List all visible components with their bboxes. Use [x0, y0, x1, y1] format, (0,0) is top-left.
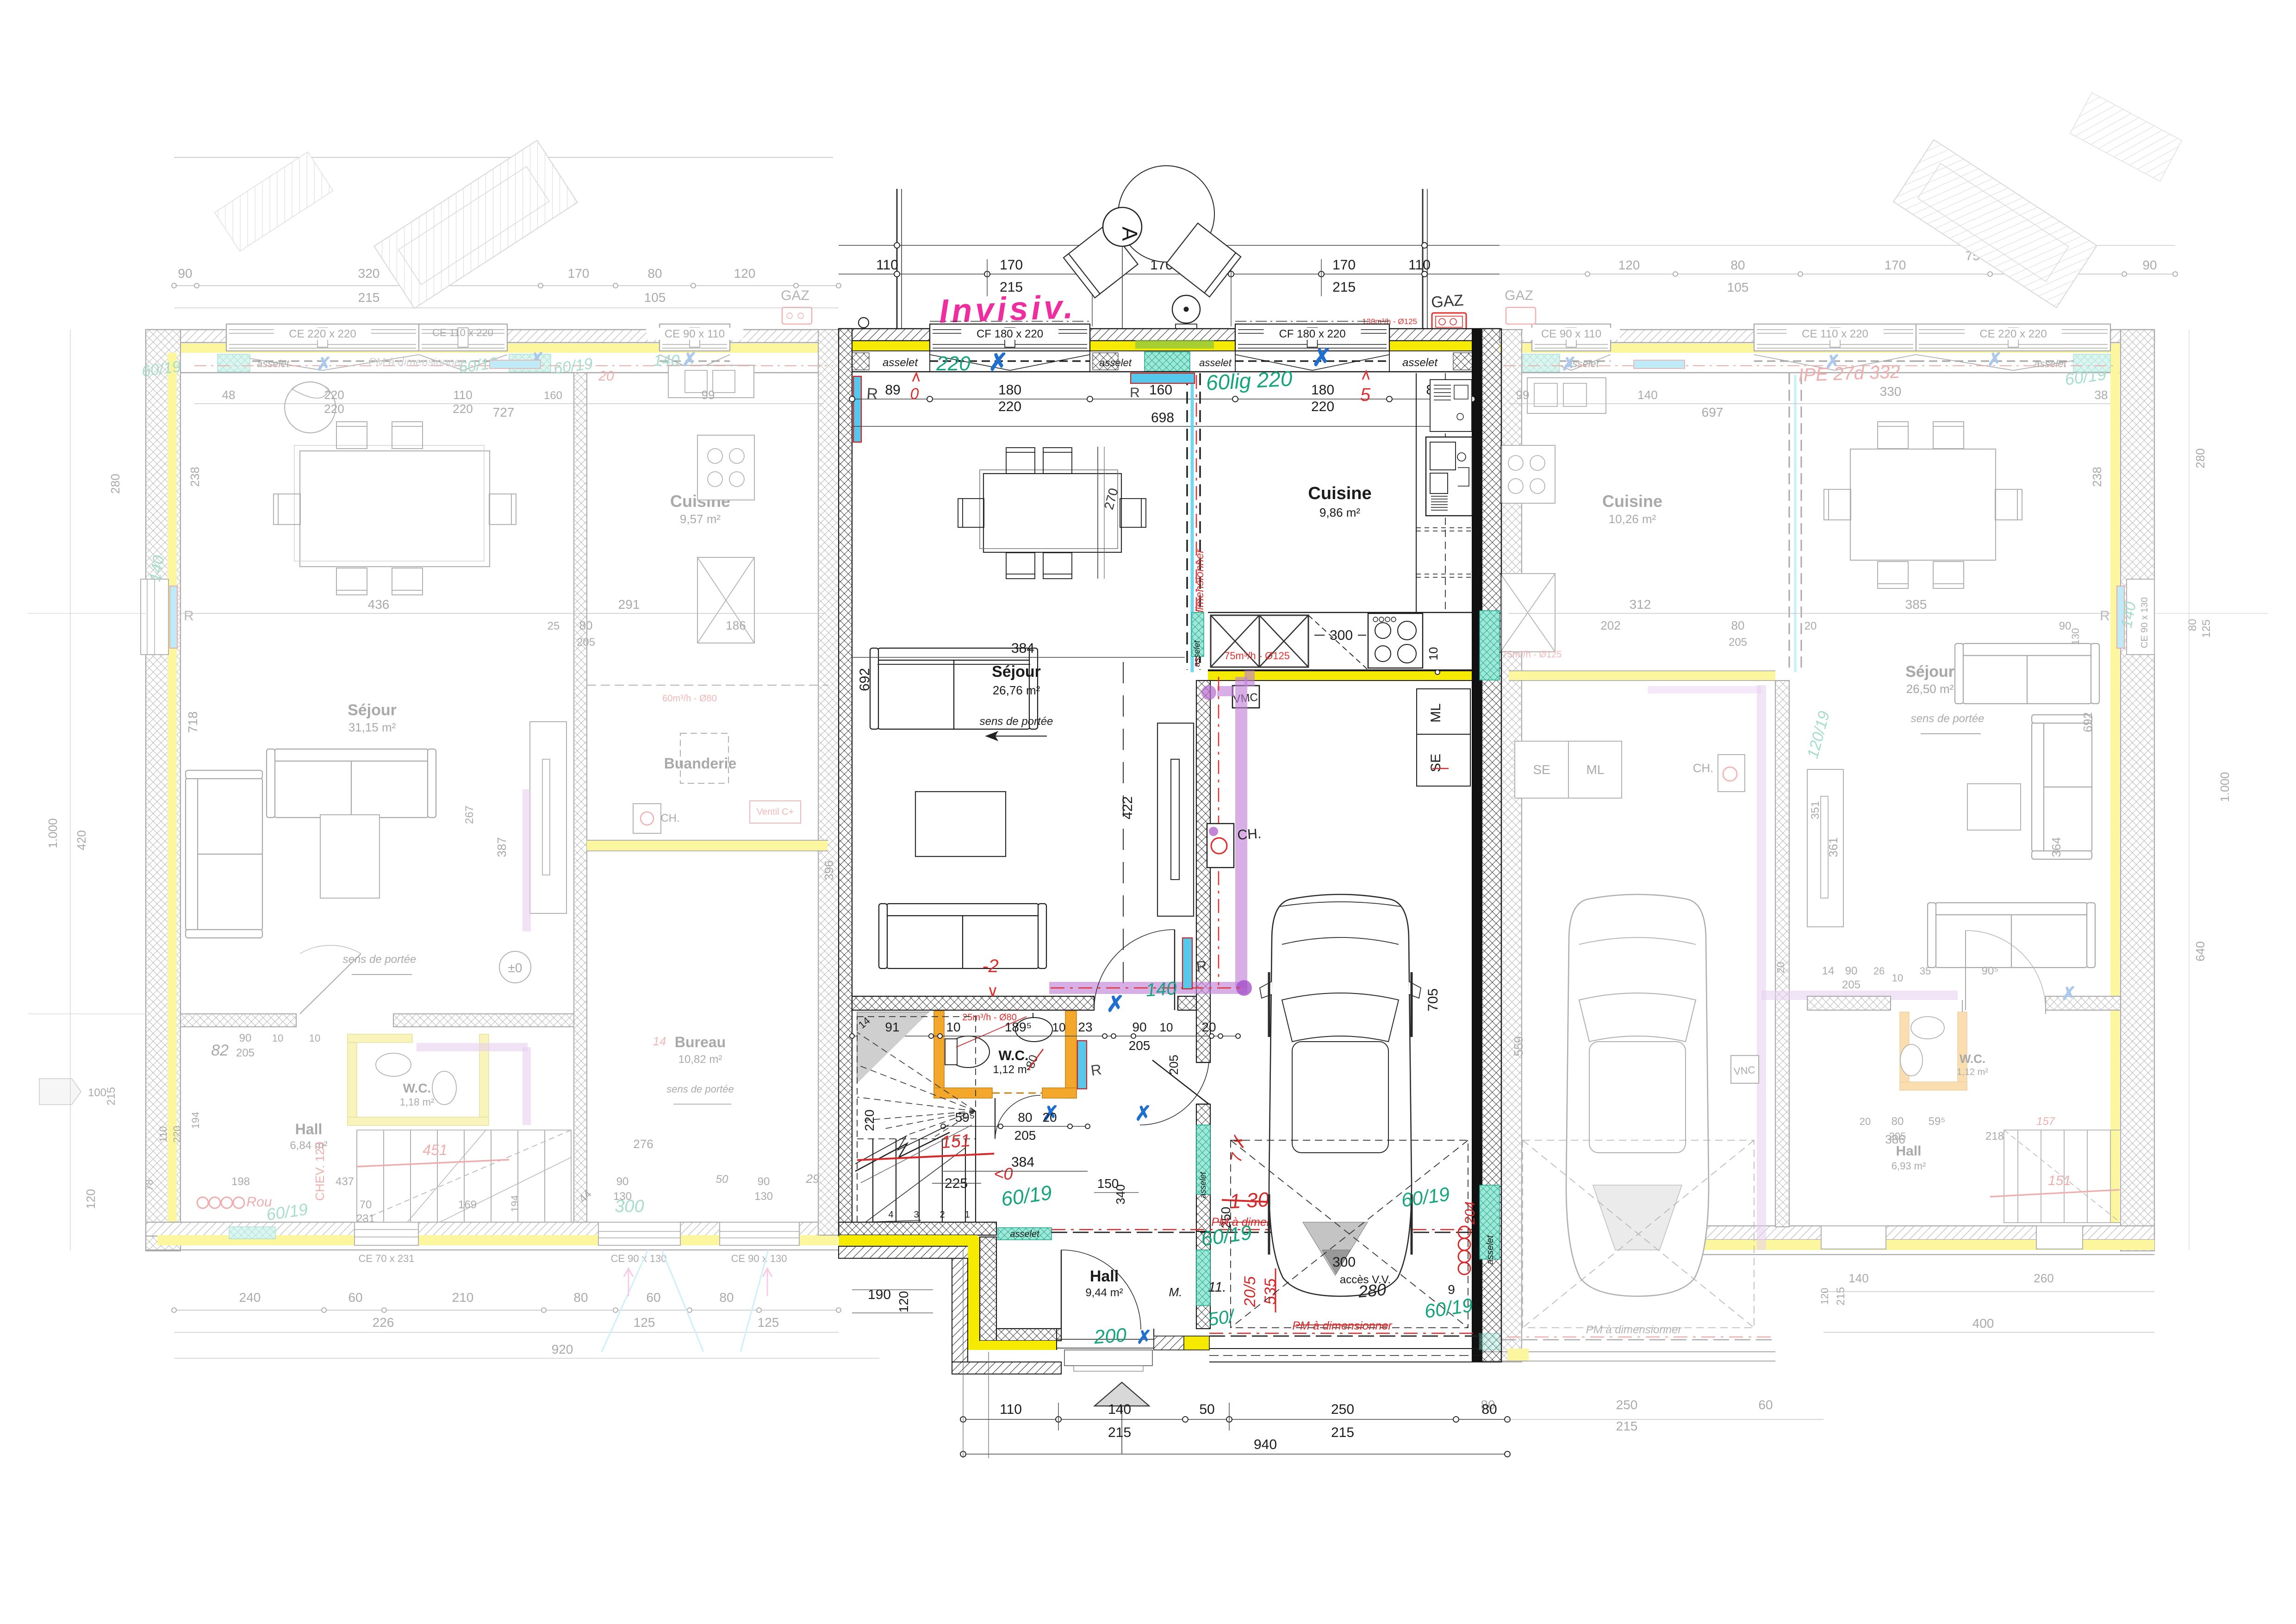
svg-text:300: 300 — [1332, 1255, 1356, 1270]
svg-text:280: 280 — [108, 474, 122, 493]
svg-text:60: 60 — [1758, 1398, 1773, 1412]
svg-text:✗: ✗ — [1135, 1102, 1152, 1125]
svg-text:422: 422 — [1120, 796, 1135, 819]
svg-text:120: 120 — [734, 266, 756, 281]
svg-text:Ventil C+: Ventil C+ — [757, 807, 794, 817]
svg-text:186: 186 — [726, 618, 746, 632]
svg-text:75m³/h - Ø125: 75m³/h - Ø125 — [1224, 650, 1290, 662]
svg-text:215: 215 — [1108, 1425, 1131, 1440]
svg-text:✗: ✗ — [988, 349, 1008, 376]
svg-text:48: 48 — [222, 388, 236, 402]
svg-text:ML: ML — [1428, 703, 1444, 723]
svg-text:PM à dimensionner: PM à dimensionner — [1292, 1319, 1393, 1332]
svg-text:240: 240 — [239, 1290, 261, 1305]
svg-text:26: 26 — [1873, 965, 1885, 977]
svg-text:80: 80 — [1018, 1110, 1032, 1124]
svg-text:6,93 m²: 6,93 m² — [1892, 1160, 1926, 1172]
svg-text:CE 90 x 130: CE 90 x 130 — [610, 1253, 666, 1264]
svg-text:asselet: asselet — [1192, 640, 1201, 667]
svg-text:10: 10 — [1160, 1020, 1173, 1034]
svg-text:80: 80 — [1731, 618, 1745, 632]
svg-text:R: R — [184, 608, 194, 624]
svg-text:CH.: CH. — [1693, 761, 1714, 775]
svg-text:60: 60 — [348, 1290, 362, 1305]
svg-text:90: 90 — [616, 1175, 629, 1188]
svg-text:384: 384 — [1011, 641, 1034, 656]
svg-text:130: 130 — [2070, 628, 2081, 645]
svg-text:215: 215 — [105, 1087, 118, 1106]
svg-text:420: 420 — [75, 830, 88, 850]
svg-text:50/: 50/ — [1207, 1306, 1237, 1330]
svg-text:697: 697 — [1702, 405, 1724, 419]
svg-text:asselet: asselet — [1099, 357, 1132, 369]
svg-text:PM à dimensionner: PM à dimensionner — [369, 356, 465, 369]
svg-text:120: 120 — [1819, 1288, 1830, 1305]
svg-text:sens de portée: sens de portée — [1911, 712, 1985, 725]
svg-text:220: 220 — [936, 352, 971, 375]
svg-text:IPE 27d 332: IPE 27d 332 — [1798, 362, 1901, 386]
svg-text:M.: M. — [1169, 1285, 1182, 1299]
svg-text:198: 198 — [231, 1175, 250, 1188]
svg-text:387: 387 — [495, 837, 509, 857]
svg-text:SE: SE — [1533, 762, 1550, 777]
svg-text:189⁵: 189⁵ — [1005, 1020, 1032, 1034]
svg-text:120: 120 — [896, 1291, 911, 1313]
svg-text:✗: ✗ — [316, 354, 332, 375]
svg-text:99: 99 — [702, 388, 715, 402]
svg-text:9: 9 — [1448, 1282, 1455, 1297]
svg-text:10: 10 — [1426, 647, 1440, 661]
svg-text:asselet: asselet — [1198, 1171, 1207, 1198]
svg-text:CE 220 x 220: CE 220 x 220 — [1979, 328, 2047, 340]
svg-text:29: 29 — [806, 1172, 820, 1186]
svg-text:-2: -2 — [982, 956, 999, 976]
svg-text:GAZ: GAZ — [1431, 292, 1464, 312]
svg-text:437: 437 — [336, 1175, 354, 1188]
svg-text:asselet: asselet — [1010, 1229, 1040, 1239]
svg-text:140: 140 — [1108, 1402, 1131, 1417]
svg-text:340: 340 — [1114, 1184, 1127, 1204]
svg-text:ML: ML — [1587, 762, 1605, 777]
svg-text:100: 100 — [88, 1087, 106, 1099]
svg-text:125: 125 — [2200, 619, 2213, 638]
svg-text:CE 90 x 110: CE 90 x 110 — [1541, 328, 1601, 340]
svg-text:80: 80 — [2186, 619, 2199, 631]
svg-text:210: 210 — [452, 1290, 474, 1305]
svg-text:CE 90 x 130: CE 90 x 130 — [2140, 597, 2150, 648]
svg-text:215: 215 — [1616, 1419, 1638, 1433]
svg-text:204: 204 — [1462, 1201, 1478, 1225]
svg-text:60lig 220: 60lig 220 — [1206, 366, 1294, 395]
svg-text:GAZ: GAZ — [781, 288, 809, 303]
svg-text:231: 231 — [356, 1212, 375, 1225]
svg-text:110: 110 — [1408, 257, 1431, 273]
svg-text:✗: ✗ — [1106, 992, 1125, 1017]
svg-text:10: 10 — [946, 1020, 960, 1034]
svg-text:20: 20 — [1775, 962, 1786, 973]
svg-text:330: 330 — [1880, 384, 1902, 399]
svg-text:157: 157 — [2036, 1115, 2056, 1128]
svg-text:sens de portée: sens de portée — [343, 953, 417, 966]
svg-text:194: 194 — [509, 1195, 521, 1212]
svg-text:90: 90 — [2142, 258, 2157, 272]
svg-text:82: 82 — [211, 1042, 229, 1059]
svg-text:169: 169 — [458, 1199, 477, 1211]
svg-text:140: 140 — [653, 352, 680, 369]
svg-text:250: 250 — [1331, 1402, 1354, 1417]
svg-text:VNC: VNC — [1733, 1064, 1756, 1077]
svg-text:705: 705 — [1425, 988, 1441, 1012]
svg-text:361: 361 — [1826, 837, 1840, 857]
svg-text:14: 14 — [653, 1034, 666, 1048]
svg-text:89: 89 — [885, 382, 900, 398]
svg-text:130: 130 — [754, 1190, 773, 1203]
svg-text:205: 205 — [236, 1047, 255, 1059]
svg-text:Cuisine: Cuisine — [1602, 492, 1662, 511]
svg-text:99: 99 — [1516, 388, 1530, 402]
svg-text:280: 280 — [1357, 1280, 1387, 1301]
svg-text:215: 215 — [358, 290, 380, 305]
svg-text:250: 250 — [1616, 1398, 1638, 1412]
svg-text:1: 1 — [964, 1210, 970, 1220]
svg-text:W.C.: W.C. — [999, 1048, 1029, 1063]
svg-text:26,76 m²: 26,76 m² — [993, 683, 1040, 697]
svg-text:194: 194 — [190, 1112, 201, 1129]
svg-text:Buanderie: Buanderie — [664, 755, 736, 772]
svg-text:4: 4 — [888, 1210, 893, 1220]
svg-text:asselet: asselet — [883, 356, 918, 369]
svg-text:75m³/h - Ø125: 75m³/h - Ø125 — [1502, 650, 1562, 660]
svg-text:CE 90 x 130: CE 90 x 130 — [731, 1253, 787, 1264]
svg-text:asselet: asselet — [1199, 357, 1232, 369]
svg-text:±0: ±0 — [508, 961, 523, 975]
svg-text:205: 205 — [1842, 979, 1860, 991]
svg-text:200: 200 — [1093, 1324, 1127, 1348]
svg-text:CF 180 x 220: CF 180 x 220 — [977, 328, 1043, 340]
svg-text:140: 140 — [1848, 1271, 1868, 1285]
svg-text:120: 120 — [1618, 258, 1640, 272]
svg-text:CHEV. 120: CHEV. 120 — [313, 1142, 327, 1201]
svg-text:215: 215 — [1332, 280, 1356, 295]
svg-text:80: 80 — [1730, 258, 1745, 272]
svg-text:151: 151 — [2048, 1173, 2071, 1188]
svg-text:151: 151 — [940, 1131, 971, 1152]
svg-text:sens de portée: sens de portée — [980, 715, 1053, 728]
svg-text:31,15 m²: 31,15 m² — [348, 720, 396, 734]
svg-text:91: 91 — [885, 1020, 899, 1034]
svg-text:220: 220 — [862, 1110, 877, 1131]
svg-text:CH.: CH. — [660, 812, 679, 824]
svg-text:<0: <0 — [994, 1164, 1013, 1183]
svg-text:220: 220 — [998, 399, 1021, 414]
svg-text:260: 260 — [2034, 1271, 2053, 1285]
svg-text:20: 20 — [1804, 620, 1817, 632]
svg-text:692: 692 — [2081, 712, 2095, 732]
svg-text:Séjour: Séjour — [348, 701, 397, 719]
svg-text:R: R — [1195, 957, 1208, 975]
svg-text:50: 50 — [1199, 1402, 1214, 1417]
svg-text:140: 140 — [1637, 388, 1657, 402]
svg-text:5: 5 — [1360, 385, 1371, 405]
svg-text:130: 130 — [613, 1190, 632, 1203]
svg-text:CF 180 x 220: CF 180 x 220 — [1279, 328, 1345, 340]
svg-text:90: 90 — [239, 1032, 252, 1044]
svg-text:SE: SE — [1428, 754, 1444, 772]
svg-text:23: 23 — [1078, 1020, 1092, 1034]
svg-text:90: 90 — [1845, 965, 1858, 977]
svg-text:78: 78 — [143, 1180, 155, 1191]
svg-text:20: 20 — [598, 369, 614, 384]
svg-text:25: 25 — [548, 620, 560, 632]
svg-text:218: 218 — [1985, 1130, 2004, 1143]
svg-text:9,57 m²: 9,57 m² — [680, 512, 721, 526]
svg-text:Hall: Hall — [295, 1121, 323, 1137]
svg-text:80: 80 — [1892, 1115, 1904, 1128]
svg-text:220: 220 — [171, 1126, 183, 1143]
svg-text:asselet: asselet — [1485, 1235, 1495, 1265]
svg-text:727: 727 — [493, 405, 515, 419]
svg-text:14: 14 — [1822, 965, 1835, 977]
svg-text:CE 110 x 220: CE 110 x 220 — [432, 327, 493, 338]
svg-text:70: 70 — [360, 1199, 372, 1211]
svg-text:CH.: CH. — [1237, 826, 1262, 843]
svg-text:300: 300 — [1330, 628, 1353, 643]
svg-text:320: 320 — [358, 266, 380, 281]
svg-text:60: 60 — [646, 1290, 660, 1305]
svg-text:238: 238 — [2090, 467, 2104, 487]
svg-text:20: 20 — [1042, 1110, 1057, 1124]
svg-text:105: 105 — [1727, 280, 1749, 294]
svg-text:1.000: 1.000 — [46, 818, 60, 848]
svg-text:215: 215 — [1835, 1287, 1847, 1305]
svg-text:90⁵: 90⁵ — [1982, 965, 1999, 977]
svg-text:291: 291 — [618, 597, 640, 612]
svg-text:140: 140 — [1145, 978, 1177, 1001]
svg-text:718: 718 — [186, 712, 200, 733]
svg-text:20: 20 — [1860, 1116, 1871, 1127]
svg-text:60m³/h - Ø80: 60m³/h - Ø80 — [662, 693, 717, 704]
svg-text:50: 50 — [716, 1173, 728, 1186]
svg-text:2: 2 — [940, 1210, 945, 1220]
svg-text:110: 110 — [157, 1126, 169, 1142]
svg-text:80: 80 — [1481, 1398, 1495, 1412]
svg-text:170: 170 — [568, 266, 590, 281]
svg-text:10,26 m²: 10,26 m² — [1609, 512, 1656, 526]
svg-text:205: 205 — [1167, 1055, 1181, 1074]
svg-text:312: 312 — [1630, 597, 1651, 612]
svg-text:120: 120 — [84, 1189, 98, 1209]
svg-text:267: 267 — [463, 806, 476, 824]
svg-text:R: R — [866, 385, 878, 403]
svg-text:238: 238 — [188, 467, 202, 487]
svg-text:226: 226 — [373, 1315, 394, 1330]
svg-text:asselet: asselet — [2034, 358, 2067, 369]
svg-text:280: 280 — [2193, 448, 2207, 468]
svg-text:698: 698 — [1151, 410, 1174, 425]
svg-text:W.C.: W.C. — [403, 1081, 431, 1095]
svg-text:351: 351 — [1809, 801, 1822, 819]
svg-text:9,86 m²: 9,86 m² — [1319, 506, 1360, 519]
svg-text:20: 20 — [1201, 1020, 1216, 1034]
svg-text:R: R — [1130, 385, 1140, 400]
svg-text:Séjour: Séjour — [992, 663, 1041, 681]
svg-text:180: 180 — [998, 382, 1021, 398]
svg-text:170: 170 — [1000, 257, 1023, 273]
svg-text:205: 205 — [1729, 636, 1747, 649]
svg-text:90: 90 — [758, 1175, 770, 1188]
svg-text:35: 35 — [1920, 965, 1931, 977]
svg-text:asselet: asselet — [1402, 356, 1438, 369]
svg-text:400: 400 — [1972, 1316, 1994, 1330]
svg-text:59⁵: 59⁵ — [1929, 1115, 1946, 1128]
svg-text:11.: 11. — [1208, 1280, 1226, 1295]
svg-text:205: 205 — [577, 636, 595, 649]
svg-text:20/5: 20/5 — [1241, 1276, 1259, 1307]
svg-text:GAZ: GAZ — [1505, 288, 1533, 303]
svg-text:180: 180 — [1311, 382, 1334, 398]
svg-text:80: 80 — [719, 1290, 734, 1305]
svg-text:110: 110 — [453, 388, 472, 402]
svg-text:✗: ✗ — [1136, 1327, 1152, 1348]
svg-text:920: 920 — [552, 1342, 573, 1356]
svg-text:105: 105 — [644, 290, 666, 305]
svg-text:110: 110 — [876, 257, 898, 273]
svg-text:✗: ✗ — [682, 350, 697, 370]
svg-text:R: R — [1090, 1061, 1103, 1079]
svg-text:90: 90 — [1132, 1020, 1146, 1034]
svg-text:385: 385 — [1905, 597, 1927, 612]
svg-text:396: 396 — [822, 860, 836, 880]
svg-text:W.C.: W.C. — [1960, 1052, 1985, 1066]
svg-text:160: 160 — [1149, 382, 1172, 398]
svg-text:CE 70 x 231: CE 70 x 231 — [358, 1253, 414, 1264]
svg-text:sens de portée: sens de portée — [666, 1083, 734, 1095]
svg-text:∨: ∨ — [987, 982, 999, 1000]
svg-text:276: 276 — [633, 1137, 653, 1151]
svg-text:384: 384 — [1011, 1155, 1034, 1170]
svg-text:640: 640 — [2193, 941, 2207, 961]
svg-text:90: 90 — [178, 266, 192, 281]
svg-text:10: 10 — [272, 1032, 283, 1044]
svg-text:A: A — [1118, 227, 1142, 241]
svg-text:CE 90 x 110: CE 90 x 110 — [665, 328, 725, 340]
svg-text:10: 10 — [309, 1032, 320, 1044]
svg-text:125: 125 — [634, 1315, 655, 1330]
svg-text:436: 436 — [368, 597, 390, 612]
svg-text:1,18 m²: 1,18 m² — [400, 1096, 435, 1108]
svg-text:9,44 m²: 9,44 m² — [1085, 1287, 1123, 1299]
svg-text:364: 364 — [2049, 837, 2063, 857]
svg-text:451: 451 — [423, 1142, 447, 1158]
svg-text:386: 386 — [1885, 1132, 1905, 1146]
svg-text:Séjour: Séjour — [1905, 663, 1954, 681]
svg-text:80: 80 — [573, 1290, 588, 1305]
svg-text:190: 190 — [868, 1287, 891, 1302]
svg-text:10,82 m²: 10,82 m² — [678, 1053, 722, 1066]
svg-text:80: 80 — [579, 618, 593, 632]
svg-text:✗: ✗ — [2061, 984, 2077, 1004]
svg-text:26,50 m²: 26,50 m² — [1906, 682, 1954, 696]
svg-text:205: 205 — [1129, 1038, 1151, 1053]
svg-text:✗: ✗ — [1561, 354, 1577, 375]
svg-text:Bureau: Bureau — [675, 1034, 726, 1050]
svg-text:10: 10 — [1892, 972, 1903, 984]
svg-text:3: 3 — [914, 1210, 919, 1220]
svg-text:940: 940 — [1254, 1437, 1277, 1452]
svg-text:1,12 m²: 1,12 m² — [1957, 1067, 1988, 1077]
svg-text:1.000: 1.000 — [2218, 772, 2232, 802]
svg-text:Cuisine: Cuisine — [1308, 484, 1371, 503]
svg-text:110: 110 — [1000, 1402, 1022, 1417]
svg-text:692: 692 — [857, 668, 872, 691]
svg-text:220: 220 — [1311, 399, 1334, 414]
svg-text:✗: ✗ — [1825, 352, 1841, 372]
svg-text:✗: ✗ — [1987, 350, 2003, 370]
svg-text:✗: ✗ — [1312, 344, 1332, 371]
svg-text:215: 215 — [1331, 1425, 1354, 1440]
svg-text:38: 38 — [2095, 388, 2108, 402]
svg-text:10: 10 — [1052, 1020, 1066, 1034]
svg-text:559: 559 — [1512, 1036, 1525, 1056]
svg-text:220: 220 — [324, 388, 344, 402]
svg-text:160: 160 — [544, 389, 562, 402]
svg-text:CE 220 x 220: CE 220 x 220 — [289, 328, 356, 340]
svg-text:0: 0 — [910, 385, 919, 403]
svg-text:CE 110 x 220: CE 110 x 220 — [1802, 328, 1868, 340]
svg-text:205: 205 — [1014, 1128, 1036, 1143]
svg-text:R: R — [2100, 608, 2110, 624]
svg-text:170: 170 — [1885, 258, 1906, 272]
svg-text:asselet: asselet — [257, 358, 290, 369]
svg-text:170: 170 — [1332, 257, 1356, 273]
svg-text:125: 125 — [758, 1315, 779, 1330]
svg-text:202: 202 — [1600, 618, 1620, 632]
svg-text:PM à dimensionner: PM à dimensionner — [1586, 1324, 1682, 1336]
svg-text:80: 80 — [647, 266, 662, 281]
